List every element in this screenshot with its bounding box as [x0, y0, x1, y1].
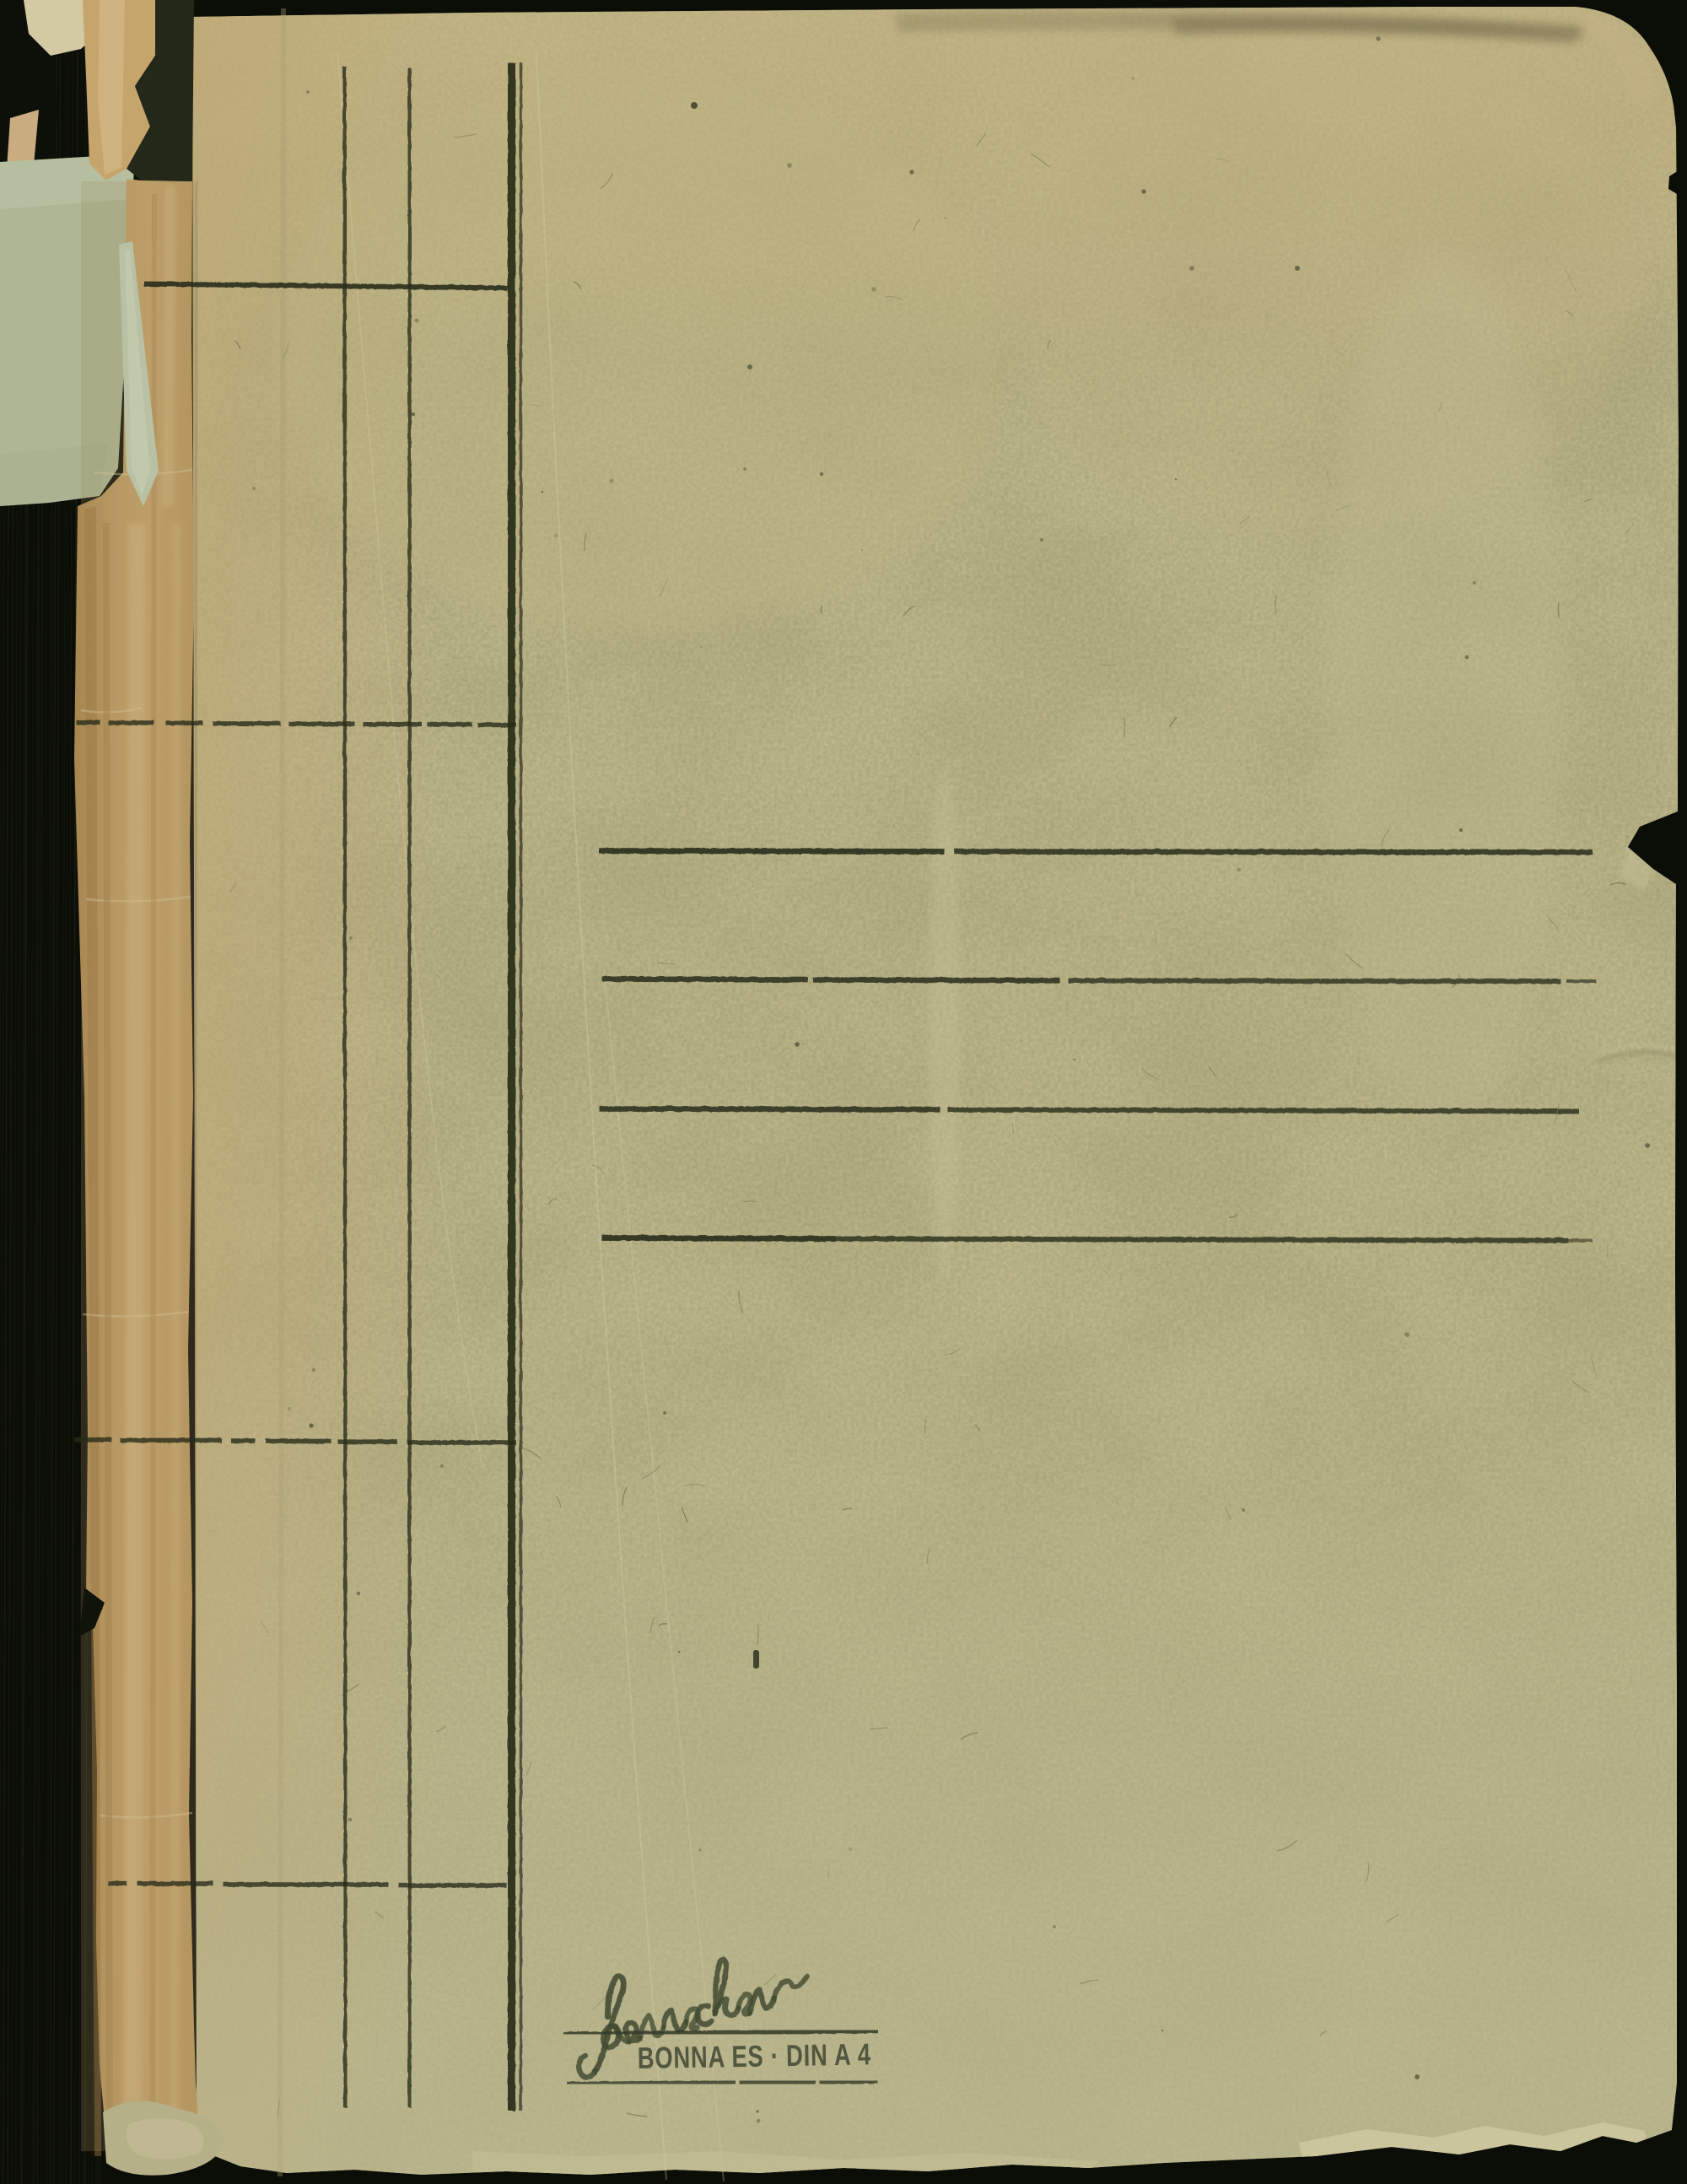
svg-text:BONNA ES · DIN A 4: BONNA ES · DIN A 4 [637, 2036, 871, 2075]
